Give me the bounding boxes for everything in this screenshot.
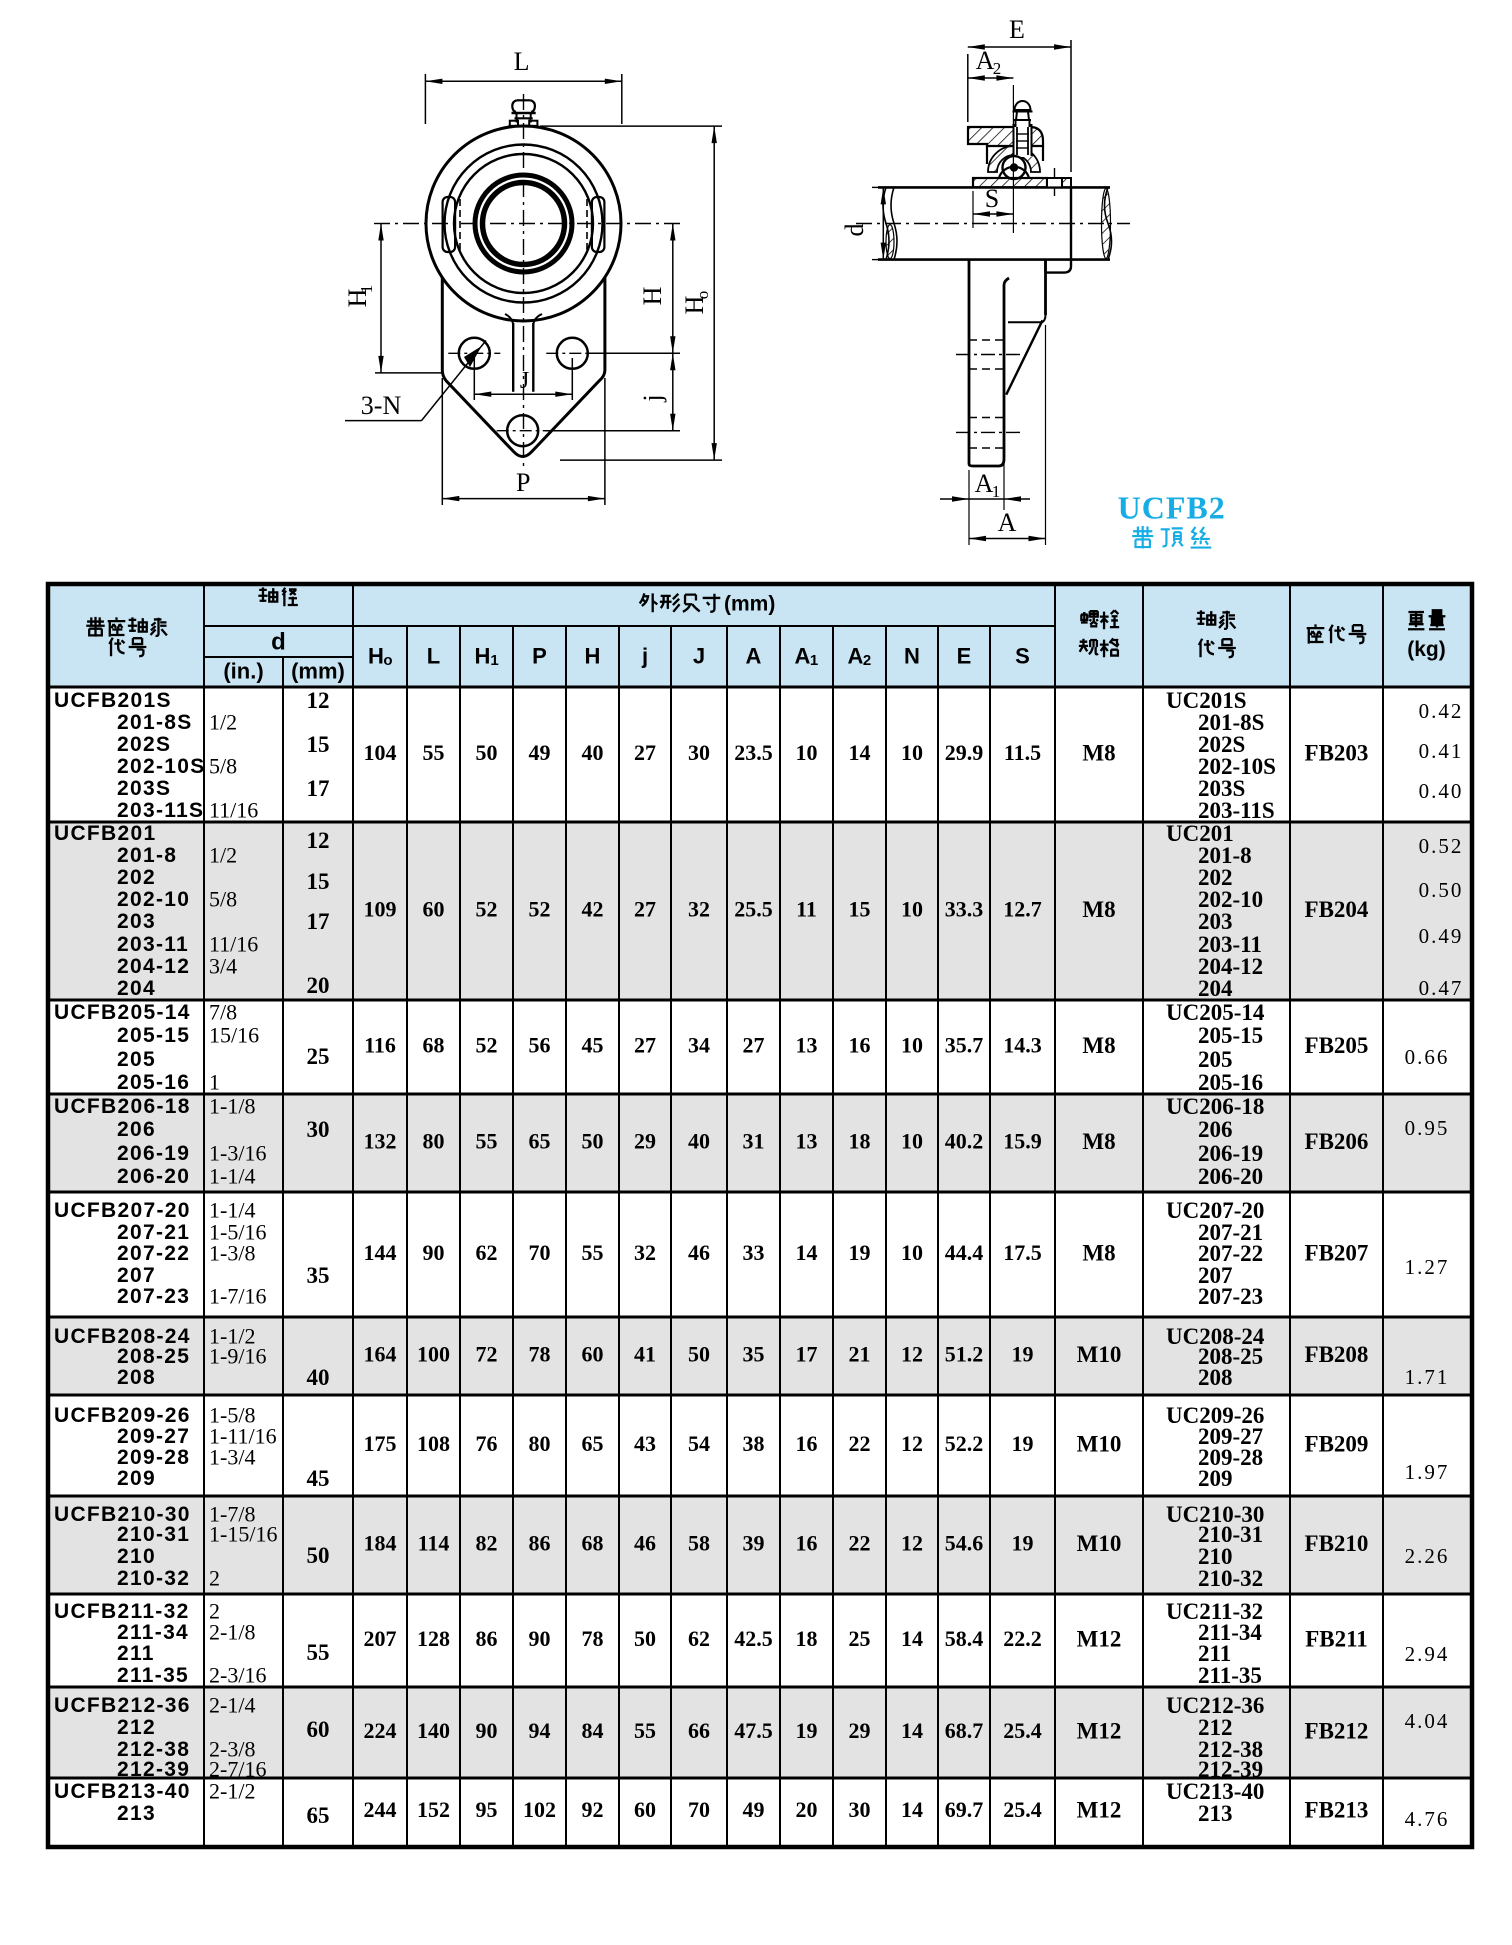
svg-text:(mm): (mm) — [724, 592, 775, 615]
svg-text:175: 175 — [364, 1431, 397, 1456]
svg-text:206: 206 — [117, 1118, 156, 1141]
svg-text:5/8: 5/8 — [209, 887, 237, 912]
svg-text:2-3/16: 2-3/16 — [209, 1663, 266, 1688]
svg-text:2: 2 — [209, 1566, 220, 1591]
svg-text:43: 43 — [634, 1431, 656, 1456]
svg-text:38: 38 — [743, 1431, 765, 1456]
svg-text:3-N: 3-N — [361, 391, 402, 420]
svg-text:52.2: 52.2 — [945, 1431, 984, 1456]
svg-text:(in.): (in.) — [223, 659, 263, 684]
svg-text:FB212: FB212 — [1305, 1718, 1369, 1743]
svg-text:0.41: 0.41 — [1419, 739, 1464, 763]
svg-text:0.52: 0.52 — [1419, 834, 1464, 858]
svg-text:68: 68 — [582, 1531, 604, 1556]
svg-text:55: 55 — [582, 1240, 604, 1265]
svg-text:45: 45 — [582, 1033, 604, 1058]
svg-text:19: 19 — [1012, 1531, 1034, 1556]
svg-text:35: 35 — [743, 1342, 765, 1367]
svg-text:40: 40 — [307, 1365, 330, 1390]
svg-text:1.97: 1.97 — [1405, 1460, 1450, 1484]
svg-text:17.5: 17.5 — [1003, 1240, 1042, 1265]
svg-text:209-28: 209-28 — [117, 1446, 190, 1469]
svg-text:114: 114 — [418, 1531, 450, 1556]
svg-text:40.2: 40.2 — [945, 1129, 984, 1154]
svg-text:19: 19 — [1012, 1342, 1034, 1367]
svg-text:j: j — [638, 394, 667, 402]
svg-text:207: 207 — [364, 1626, 397, 1651]
svg-text:82: 82 — [476, 1531, 498, 1556]
svg-text:211: 211 — [117, 1642, 155, 1665]
svg-text:203-11S: 203-11S — [117, 799, 204, 822]
svg-text:FB210: FB210 — [1305, 1531, 1369, 1556]
svg-text:49: 49 — [529, 740, 551, 765]
svg-text:3/4: 3/4 — [209, 954, 237, 979]
svg-text:P: P — [532, 644, 547, 669]
svg-text:208: 208 — [117, 1366, 156, 1389]
svg-text:30: 30 — [849, 1797, 871, 1822]
svg-text:213: 213 — [1198, 1801, 1233, 1826]
svg-text:27: 27 — [743, 1033, 765, 1058]
svg-text:UCFB201S: UCFB201S — [54, 689, 172, 712]
svg-text:52: 52 — [476, 1033, 498, 1058]
svg-text:d: d — [840, 224, 869, 237]
svg-text:1: 1 — [357, 285, 376, 294]
svg-text:FB211: FB211 — [1305, 1626, 1368, 1651]
svg-text:205-16: 205-16 — [1198, 1070, 1263, 1095]
svg-text:FB213: FB213 — [1305, 1797, 1369, 1822]
svg-text:M12: M12 — [1077, 1797, 1122, 1822]
svg-text:27: 27 — [634, 740, 656, 765]
svg-text:10: 10 — [901, 1240, 923, 1265]
svg-text:20: 20 — [307, 973, 330, 998]
svg-text:(kg): (kg) — [1407, 638, 1446, 661]
svg-text:H: H — [475, 644, 491, 669]
svg-text:10: 10 — [901, 1033, 923, 1058]
svg-text:210-32: 210-32 — [117, 1567, 190, 1590]
svg-text:42.5: 42.5 — [734, 1626, 773, 1651]
svg-text:M10: M10 — [1077, 1342, 1122, 1367]
svg-text:UCFB209-26: UCFB209-26 — [54, 1404, 191, 1427]
svg-text:15/16: 15/16 — [209, 1023, 259, 1048]
svg-text:1-9/16: 1-9/16 — [209, 1344, 266, 1369]
svg-text:2.26: 2.26 — [1405, 1544, 1450, 1568]
svg-text:210-31: 210-31 — [117, 1523, 190, 1546]
svg-text:58.4: 58.4 — [945, 1626, 984, 1651]
svg-text:164: 164 — [364, 1342, 397, 1367]
svg-text:A: A — [975, 469, 994, 498]
svg-text:60: 60 — [582, 1342, 604, 1367]
svg-text:M12: M12 — [1077, 1718, 1122, 1743]
svg-text:12: 12 — [307, 688, 330, 713]
svg-text:29.9: 29.9 — [945, 740, 984, 765]
svg-text:M8: M8 — [1082, 897, 1115, 922]
svg-text:25.4: 25.4 — [1003, 1797, 1042, 1822]
svg-text:92: 92 — [582, 1797, 604, 1822]
svg-text:0.47: 0.47 — [1419, 976, 1464, 1000]
svg-text:35: 35 — [307, 1263, 330, 1288]
svg-text:0.40: 0.40 — [1419, 779, 1464, 803]
svg-text:E: E — [1009, 15, 1025, 44]
svg-text:109: 109 — [364, 897, 397, 922]
svg-text:50: 50 — [634, 1626, 656, 1651]
svg-text:13: 13 — [796, 1129, 818, 1154]
svg-text:184: 184 — [364, 1531, 397, 1556]
svg-text:L: L — [427, 644, 440, 669]
svg-text:32: 32 — [634, 1240, 656, 1265]
svg-text:205-16: 205-16 — [117, 1071, 190, 1094]
svg-text:49: 49 — [743, 1797, 765, 1822]
svg-text:0.50: 0.50 — [1419, 878, 1464, 902]
svg-text:FB205: FB205 — [1305, 1033, 1369, 1058]
svg-text:204: 204 — [117, 977, 156, 1000]
svg-text:62: 62 — [476, 1240, 498, 1265]
svg-text:201-8S: 201-8S — [117, 711, 193, 734]
svg-text:204: 204 — [1198, 976, 1233, 1001]
svg-text:UCFB213-40: UCFB213-40 — [54, 1780, 191, 1803]
svg-text:144: 144 — [364, 1240, 397, 1265]
svg-text:10: 10 — [796, 740, 818, 765]
svg-text:206: 206 — [1198, 1117, 1233, 1142]
svg-text:51.2: 51.2 — [945, 1342, 984, 1367]
svg-text:M8: M8 — [1082, 740, 1115, 765]
svg-text:2-1/8: 2-1/8 — [209, 1620, 255, 1645]
svg-text:UC206-18: UC206-18 — [1166, 1094, 1264, 1119]
svg-text:211-35: 211-35 — [1198, 1663, 1262, 1688]
svg-text:32: 32 — [688, 897, 710, 922]
svg-text:UC205-14: UC205-14 — [1166, 1000, 1265, 1025]
svg-text:15: 15 — [307, 732, 330, 757]
svg-text:42: 42 — [582, 897, 604, 922]
svg-text:1-15/16: 1-15/16 — [209, 1522, 277, 1547]
svg-text:25.5: 25.5 — [734, 897, 773, 922]
svg-text:211-35: 211-35 — [117, 1664, 189, 1687]
svg-text:H: H — [638, 286, 667, 305]
svg-text:40: 40 — [582, 740, 604, 765]
svg-text:140: 140 — [417, 1718, 450, 1743]
svg-text:15.9: 15.9 — [1003, 1129, 1042, 1154]
svg-text:A: A — [795, 644, 811, 669]
svg-text:E: E — [957, 644, 972, 669]
svg-text:1/2: 1/2 — [209, 843, 237, 868]
svg-text:72: 72 — [476, 1342, 498, 1367]
svg-text:L: L — [514, 47, 530, 76]
svg-text:N: N — [904, 644, 920, 669]
svg-text:70: 70 — [529, 1240, 551, 1265]
svg-text:208-25: 208-25 — [117, 1345, 190, 1368]
svg-text:1-3/4: 1-3/4 — [209, 1445, 255, 1470]
svg-text:207: 207 — [117, 1264, 156, 1287]
svg-text:60: 60 — [307, 1717, 330, 1742]
svg-text:76: 76 — [476, 1431, 498, 1456]
svg-text:56: 56 — [529, 1033, 551, 1058]
svg-text:10: 10 — [901, 897, 923, 922]
svg-text:206-19: 206-19 — [117, 1142, 190, 1165]
svg-text:108: 108 — [417, 1431, 450, 1456]
svg-text:201-8: 201-8 — [117, 844, 177, 867]
svg-text:40: 40 — [688, 1129, 710, 1154]
svg-text:14: 14 — [901, 1626, 923, 1651]
svg-text:55: 55 — [476, 1129, 498, 1154]
svg-text:2: 2 — [863, 652, 871, 669]
svg-text:55: 55 — [307, 1640, 330, 1665]
svg-text:132: 132 — [364, 1129, 397, 1154]
svg-text:19: 19 — [849, 1240, 871, 1265]
svg-text:A: A — [848, 644, 864, 669]
svg-text:1: 1 — [209, 1070, 220, 1095]
svg-text:22: 22 — [849, 1431, 871, 1456]
svg-text:1-1/4: 1-1/4 — [209, 1164, 255, 1189]
svg-text:0.49: 0.49 — [1419, 924, 1464, 948]
svg-text:58: 58 — [688, 1531, 710, 1556]
svg-text:90: 90 — [476, 1718, 498, 1743]
svg-text:41: 41 — [634, 1342, 656, 1367]
svg-text:1-3/8: 1-3/8 — [209, 1241, 255, 1266]
svg-text:12.7: 12.7 — [1003, 897, 1042, 922]
svg-text:31: 31 — [743, 1129, 765, 1154]
svg-text:116: 116 — [364, 1033, 396, 1058]
svg-text:46: 46 — [688, 1240, 710, 1265]
svg-text:212-39: 212-39 — [117, 1758, 190, 1781]
svg-text:213: 213 — [117, 1802, 156, 1825]
svg-text:FB204: FB204 — [1305, 897, 1369, 922]
svg-text:1-7/16: 1-7/16 — [209, 1284, 266, 1309]
svg-text:22.2: 22.2 — [1003, 1626, 1042, 1651]
svg-text:203-11S: 203-11S — [1198, 798, 1275, 823]
svg-text:16: 16 — [796, 1531, 818, 1556]
svg-text:86: 86 — [476, 1626, 498, 1651]
svg-text:50: 50 — [307, 1543, 330, 1568]
svg-text:14: 14 — [849, 740, 871, 765]
svg-text:2-1/2: 2-1/2 — [209, 1779, 255, 1804]
svg-text:1-1/8: 1-1/8 — [209, 1094, 255, 1119]
svg-text:62: 62 — [688, 1626, 710, 1651]
svg-text:o: o — [693, 291, 712, 300]
svg-text:212: 212 — [117, 1716, 156, 1739]
svg-text:UCFB201: UCFB201 — [54, 822, 156, 845]
svg-text:12: 12 — [901, 1431, 923, 1456]
svg-text:203: 203 — [1198, 909, 1233, 934]
svg-text:207-22: 207-22 — [117, 1242, 190, 1265]
svg-text:2.94: 2.94 — [1405, 1642, 1450, 1666]
svg-text:55: 55 — [634, 1718, 656, 1743]
svg-text:j: j — [641, 644, 648, 669]
svg-text:29: 29 — [849, 1718, 871, 1743]
svg-text:90: 90 — [529, 1626, 551, 1651]
svg-text:2: 2 — [993, 59, 1002, 78]
svg-text:209: 209 — [117, 1467, 156, 1490]
svg-text:11/16: 11/16 — [209, 798, 258, 823]
svg-text:27: 27 — [634, 1033, 656, 1058]
svg-text:25: 25 — [307, 1044, 330, 1069]
svg-text:22: 22 — [849, 1531, 871, 1556]
svg-text:UCFB207-20: UCFB207-20 — [54, 1199, 191, 1222]
svg-text:15: 15 — [307, 869, 330, 894]
svg-text:1: 1 — [992, 482, 1001, 501]
svg-text:16: 16 — [796, 1431, 818, 1456]
svg-text:30: 30 — [688, 740, 710, 765]
svg-text:90: 90 — [423, 1240, 445, 1265]
svg-text:206-20: 206-20 — [1198, 1164, 1263, 1189]
svg-text:84: 84 — [582, 1718, 604, 1743]
svg-text:202S: 202S — [117, 733, 171, 756]
svg-text:210: 210 — [117, 1545, 156, 1568]
svg-text:68.7: 68.7 — [945, 1718, 984, 1743]
svg-text:65: 65 — [582, 1431, 604, 1456]
svg-text:17: 17 — [796, 1342, 818, 1367]
svg-text:207-23: 207-23 — [1198, 1284, 1263, 1309]
svg-text:30: 30 — [307, 1117, 330, 1142]
svg-text:A: A — [746, 644, 762, 669]
svg-text:204-12: 204-12 — [117, 955, 190, 978]
svg-text:UCFB205-14: UCFB205-14 — [54, 1001, 191, 1024]
svg-text:54: 54 — [688, 1431, 710, 1456]
svg-text:65: 65 — [307, 1803, 330, 1828]
svg-text:UCFB206-18: UCFB206-18 — [54, 1095, 191, 1118]
svg-text:UCFB211-32: UCFB211-32 — [54, 1600, 190, 1623]
svg-text:33: 33 — [743, 1240, 765, 1265]
svg-text:203S: 203S — [117, 777, 171, 800]
svg-text:10: 10 — [901, 740, 923, 765]
svg-text:5/8: 5/8 — [209, 754, 237, 779]
svg-text:H: H — [585, 644, 601, 669]
svg-text:86: 86 — [529, 1531, 551, 1556]
svg-text:47.5: 47.5 — [734, 1718, 773, 1743]
svg-text:11.5: 11.5 — [1004, 740, 1041, 765]
svg-text:52: 52 — [529, 897, 551, 922]
svg-text:46: 46 — [634, 1531, 656, 1556]
svg-text:M12: M12 — [1077, 1626, 1122, 1651]
svg-text:202-10: 202-10 — [117, 888, 190, 911]
svg-text:202: 202 — [117, 866, 156, 889]
svg-text:P: P — [516, 468, 530, 497]
svg-text:A: A — [976, 46, 995, 75]
svg-text:205-15: 205-15 — [1198, 1023, 1263, 1048]
svg-text:18: 18 — [796, 1626, 818, 1651]
svg-text:S: S — [985, 184, 999, 213]
svg-text:M8: M8 — [1082, 1033, 1115, 1058]
svg-text:205: 205 — [117, 1048, 156, 1071]
svg-text:(mm): (mm) — [291, 659, 345, 684]
svg-text:202-10S: 202-10S — [117, 755, 206, 778]
svg-text:27: 27 — [634, 897, 656, 922]
svg-text:0.66: 0.66 — [1405, 1045, 1450, 1069]
svg-text:23.5: 23.5 — [734, 740, 773, 765]
svg-text:0.42: 0.42 — [1419, 699, 1464, 723]
svg-text:205-15: 205-15 — [117, 1024, 190, 1047]
svg-text:52: 52 — [476, 897, 498, 922]
svg-text:11: 11 — [796, 897, 817, 922]
svg-text:210-32: 210-32 — [1198, 1566, 1263, 1591]
svg-text:65: 65 — [529, 1129, 551, 1154]
svg-text:4.04: 4.04 — [1405, 1709, 1450, 1733]
svg-text:7/8: 7/8 — [209, 1000, 237, 1025]
svg-text:H: H — [368, 644, 384, 669]
svg-text:10: 10 — [901, 1129, 923, 1154]
svg-text:50: 50 — [688, 1342, 710, 1367]
svg-text:60: 60 — [634, 1797, 656, 1822]
svg-text:M10: M10 — [1077, 1531, 1122, 1556]
svg-text:13: 13 — [796, 1033, 818, 1058]
svg-text:14: 14 — [796, 1240, 818, 1265]
svg-text:69.7: 69.7 — [945, 1797, 984, 1822]
svg-text:16: 16 — [849, 1033, 871, 1058]
svg-text:FB209: FB209 — [1305, 1431, 1369, 1456]
svg-text:100: 100 — [417, 1342, 450, 1367]
svg-text:45: 45 — [307, 1466, 330, 1491]
svg-text:d: d — [271, 628, 286, 655]
svg-text:14: 14 — [901, 1718, 923, 1743]
svg-text:1: 1 — [810, 652, 818, 669]
svg-text:21: 21 — [849, 1342, 871, 1367]
svg-text:209: 209 — [1198, 1466, 1233, 1491]
svg-text:50: 50 — [582, 1129, 604, 1154]
svg-text:14: 14 — [901, 1797, 923, 1822]
svg-text:44.4: 44.4 — [945, 1240, 984, 1265]
svg-text:M8: M8 — [1082, 1240, 1115, 1265]
svg-text:34: 34 — [688, 1033, 710, 1058]
svg-text:20: 20 — [796, 1797, 818, 1822]
svg-text:33.3: 33.3 — [945, 897, 984, 922]
svg-text:12: 12 — [901, 1531, 923, 1556]
svg-text:209-27: 209-27 — [117, 1425, 190, 1448]
svg-text:206-19: 206-19 — [1198, 1141, 1263, 1166]
svg-text:2-1/4: 2-1/4 — [209, 1693, 255, 1718]
svg-text:UCFB212-36: UCFB212-36 — [54, 1694, 191, 1717]
svg-text:FB206: FB206 — [1305, 1129, 1369, 1154]
svg-text:0.95: 0.95 — [1405, 1116, 1450, 1140]
svg-text:J: J — [693, 644, 705, 669]
svg-text:FB208: FB208 — [1305, 1342, 1369, 1367]
svg-text:60: 60 — [423, 897, 445, 922]
svg-text:12: 12 — [307, 828, 330, 853]
svg-text:17: 17 — [307, 776, 330, 801]
svg-text:19: 19 — [796, 1718, 818, 1743]
svg-text:94: 94 — [529, 1718, 551, 1743]
svg-text:55: 55 — [423, 740, 445, 765]
svg-text:207-23: 207-23 — [117, 1285, 190, 1308]
svg-text:19: 19 — [1012, 1431, 1034, 1456]
svg-text:A: A — [998, 508, 1017, 537]
svg-text:78: 78 — [529, 1342, 551, 1367]
svg-text:206-20: 206-20 — [117, 1165, 190, 1188]
svg-text:25.4: 25.4 — [1003, 1718, 1042, 1743]
svg-text:203-11: 203-11 — [117, 933, 189, 956]
svg-text:14.3: 14.3 — [1003, 1033, 1042, 1058]
svg-text:207-21: 207-21 — [117, 1221, 190, 1244]
svg-text:35.7: 35.7 — [945, 1033, 984, 1058]
svg-text:80: 80 — [529, 1431, 551, 1456]
svg-text:66: 66 — [688, 1718, 710, 1743]
svg-text:104: 104 — [364, 740, 397, 765]
svg-text:18: 18 — [849, 1129, 871, 1154]
svg-text:17: 17 — [307, 909, 330, 934]
svg-text:FB207: FB207 — [1305, 1240, 1369, 1265]
svg-text:68: 68 — [423, 1033, 445, 1058]
svg-text:25: 25 — [849, 1626, 871, 1651]
svg-text:1.71: 1.71 — [1405, 1365, 1450, 1389]
svg-text:FB203: FB203 — [1305, 740, 1369, 765]
svg-text:203: 203 — [117, 910, 156, 933]
svg-text:102: 102 — [523, 1797, 556, 1822]
svg-text:208: 208 — [1198, 1365, 1233, 1390]
svg-text:1: 1 — [490, 652, 498, 669]
svg-text:4.76: 4.76 — [1405, 1807, 1450, 1831]
svg-text:244: 244 — [364, 1797, 397, 1822]
svg-text:80: 80 — [423, 1129, 445, 1154]
svg-text:S: S — [1015, 644, 1030, 669]
svg-text:1.27: 1.27 — [1405, 1255, 1450, 1279]
svg-text:o: o — [383, 652, 392, 669]
